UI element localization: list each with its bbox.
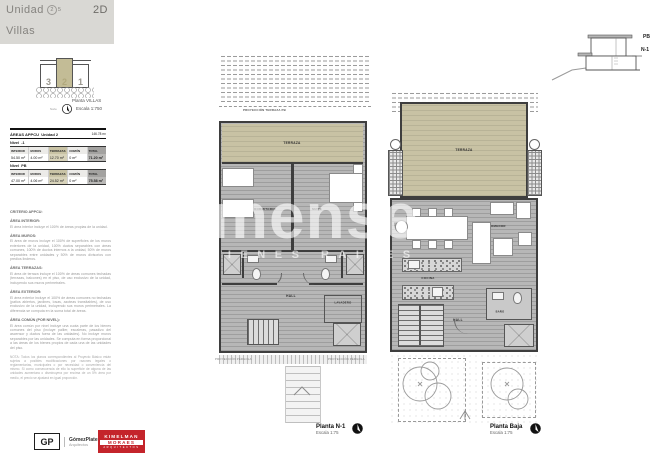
entry-garden [390,354,538,424]
vegetation-hatch [219,55,371,102]
gp-logo-box: GP [34,433,60,450]
criteria-block: CRITERIO APPCU: ÁREA INTERIOR:El área in… [10,210,111,380]
bed [222,168,254,187]
key-plan-unit-2-highlight: 2 [56,58,73,88]
section-label-pb: PB [643,34,650,40]
chair [428,208,437,217]
chair [412,208,421,217]
unit-number-badge: 2 [47,5,57,15]
areas-table-unit: Unidad 2 [41,132,58,137]
up-arrow-icon [292,385,312,397]
table-value-row: 54.50 m² 4.00 m² 12.70 m² 0 m² 71.20 m² [10,154,106,162]
door-arc [303,273,316,285]
kitchen-sink [408,260,420,269]
room-label-cocina: COCINA [421,276,434,280]
plan-n1: PROYECCIÓN TERRAZA PB TERRAZA DORMITORIO… [215,55,375,425]
areas-table-title: ÁREAS APPCU [10,132,39,137]
section-diagram [550,18,650,88]
wall [242,252,244,278]
chair-round [395,220,408,234]
wall [309,283,363,285]
north-icon [530,423,541,434]
outdoor-fixture [390,139,401,150]
north-icon [62,104,72,114]
key-plan-ground-hatch [36,87,94,98]
room-label-terraza: TERRAZA [283,141,300,145]
entry-marker-icon [458,409,472,421]
sink [247,255,259,263]
plan-sheet: { "header": {"title":"Unidad","num":"2",… [0,0,660,466]
toilet [252,268,261,280]
door-arc [454,320,469,334]
table-value-row: 47.00 m² 4.06 m² 24.52 m² 0 m² 75.58 m² [10,177,106,185]
chair [444,240,453,249]
north-icon [352,423,363,434]
key-plan-unit-3: 3 [40,64,57,88]
kimelman-moraes-logo: KIMELMAN MORAES ARQUITECTOS [98,430,145,453]
room-label-terraza-pb: TERRAZA [455,148,472,152]
stair-pb [398,304,444,347]
key-plan-caption: Planta VILLAS [72,98,101,103]
room-label-bano: BAÑO [496,311,505,314]
door-arc [269,273,282,286]
criteria-note: NOTA: Todos los planos correspondientes … [10,355,111,379]
stove [432,287,443,297]
sink [325,255,337,263]
room-label-hall: HALL [286,294,296,298]
building-pb: ESTAR / COMEDOR COCINA HALL BAÑO [390,198,538,352]
key-plan-scale: Escala 1:750 [76,106,102,111]
armchair [516,202,531,219]
title-block: Unidad 2 5 2D Villas [0,0,114,44]
room-label-dormitorio: DORMITORIO [254,207,276,211]
areas-table-total: 146.78 m² [92,132,106,137]
unit-code: 2D [93,4,108,16]
side-table [518,232,532,246]
lavadero-room [324,295,362,323]
cabinet [472,222,491,264]
toilet [321,268,330,280]
key-plan-unit-1: 1 [72,64,89,88]
plan-pb: TERRAZA ESTAR / COMEDOR COCINA HALL [388,92,542,432]
toilet [513,292,522,304]
tree-icon [482,362,534,416]
areas-table: ÁREAS APPCU Unidad 2 146.78 m² Nivel -1 … [10,128,106,185]
table-header-row: INTERIOR MUROS TERRAZAS COMÚN TOTAL [10,147,106,154]
bed [222,199,254,218]
table-header-row: INTERIOR MUROS TERRAZAS COMÚN TOTAL [10,170,106,177]
caption-pb: Planta Baja Escala 1:75 [490,424,522,435]
tree-icon [398,358,464,420]
sofa [490,202,514,215]
caption-n1: Planta N-1 Escala 1:75 [316,424,345,435]
room-label-lavadero: LAVADERO [334,302,351,305]
wall [291,164,294,250]
chair [412,240,421,249]
unit-subtitle: Villas [6,25,108,37]
projection-label: PROYECCIÓN TERRAZA PB [243,108,286,112]
dining-table [406,216,468,240]
shower [223,254,241,275]
wall [341,252,343,278]
nightstand [353,202,363,212]
lounge-chair [493,238,513,256]
room-label-suite: SUITE [312,207,322,211]
chair [428,240,437,249]
gp-logo: GP GómezPlatero Arquitectos [34,433,103,450]
nightstand [353,164,363,174]
chair [444,208,453,217]
section-label-n1: N-1 [641,47,649,53]
duct-box [333,323,361,346]
bed-double [329,173,363,203]
outdoor-fixture [529,139,540,150]
stair-n1 [247,319,279,345]
parrillero-right [527,150,542,196]
parrillero-left [388,150,403,196]
projection-label-left: PROYECCIÓN PÉRGOLA [215,357,252,361]
stair-stringer [419,304,421,345]
projection-label-right: PROYECCIÓN PÉRGOLA [328,357,365,361]
unit-total: 5 [58,7,61,13]
building-n1: TERRAZA DORMITORIO SUITE HALL LAVADERO [219,121,367,353]
shower [346,254,364,275]
unit-title: Unidad [6,4,44,16]
kitchen-island [402,285,454,300]
sink [492,292,504,300]
duct-box [504,324,534,347]
key-plan-north-label: Norte [50,107,57,111]
criteria-heading: CRITERIO APPCU: [10,210,111,215]
projection-line [219,106,371,107]
